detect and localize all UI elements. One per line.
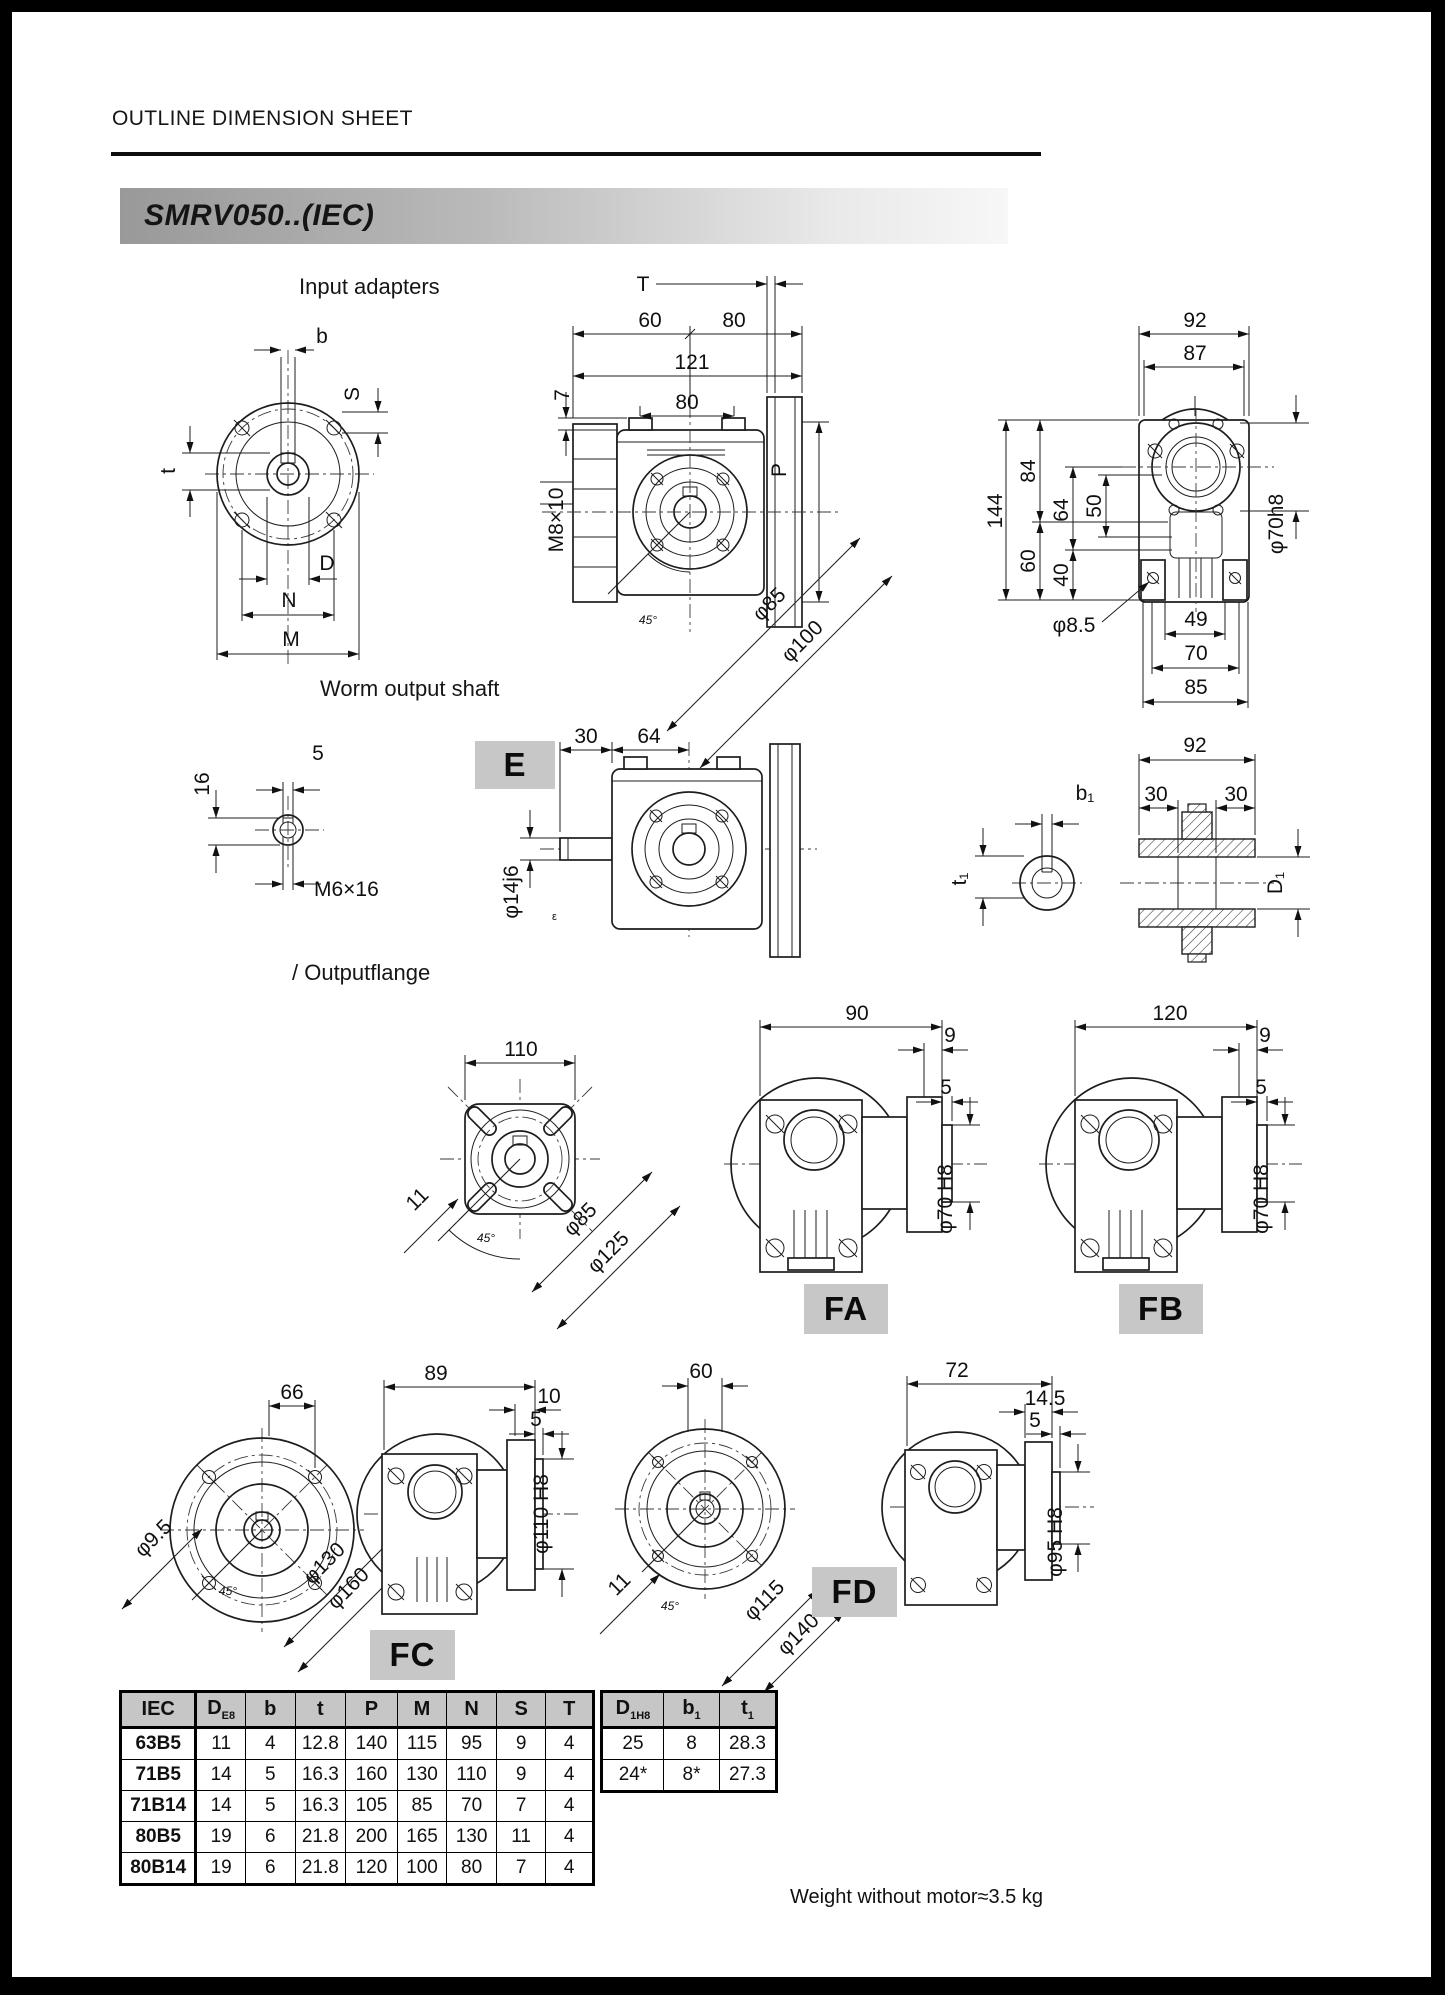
badge-e: E (475, 741, 555, 789)
cell: 4 (546, 1760, 594, 1791)
dim-phi70h8: φ70h8 (1265, 494, 1288, 554)
table-row: 71B14 14 5 16.3 105 85 70 7 4 (121, 1791, 594, 1822)
dim-70: 70 (1184, 642, 1207, 665)
col-header-t: t (295, 1692, 346, 1728)
dim-9fa: 9 (944, 1024, 956, 1047)
dim-66: 66 (280, 1381, 303, 1404)
dim-89: 89 (424, 1362, 447, 1385)
col-header-n: N (447, 1692, 497, 1728)
cell: 16.3 (295, 1760, 346, 1791)
dim-144: 144 (984, 493, 1007, 528)
cell: 140 (346, 1728, 398, 1760)
cell: 115 (397, 1728, 447, 1760)
col-header-m: M (397, 1692, 447, 1728)
output-flange-front-drawing: 110 11 45° φ85 φ125 (402, 1038, 680, 1329)
col-header-s: S (496, 1692, 546, 1728)
input-flange-front-drawing: b S t D N M (157, 325, 388, 667)
cell: 80B14 (121, 1853, 196, 1885)
cell: 25 (602, 1728, 664, 1760)
output-shaft-end-drawing: 5 16 M6×16 (191, 742, 379, 901)
cell: 71B5 (121, 1760, 196, 1791)
dim-11: 11 (402, 1184, 434, 1216)
dim-121: 121 (674, 351, 709, 374)
cell: 14 (196, 1791, 246, 1822)
dim-t1: t₁ (948, 873, 971, 886)
dim-60fd: 60 (689, 1360, 712, 1383)
dim-11fd: 11 (604, 1569, 636, 1601)
dim-s: S (341, 387, 364, 401)
flange-fa-drawing: 90 9 5 φ70 H8 (724, 1002, 987, 1272)
bushing-section-drawing: 92 30 30 D₁ (1120, 734, 1310, 962)
cell: 11 (196, 1728, 246, 1760)
table-header-row: D1H8 b1 t1 (602, 1692, 777, 1728)
dim-7: 7 (551, 389, 574, 401)
cell: 4 (546, 1791, 594, 1822)
badge-fc: FC (370, 1630, 455, 1680)
cell: 12.8 (295, 1728, 346, 1760)
cell: 8 (664, 1728, 720, 1760)
cell: 130 (447, 1822, 497, 1853)
cell: 130 (397, 1760, 447, 1791)
cell: 165 (397, 1822, 447, 1853)
dim-60r: 60 (1017, 549, 1040, 572)
dim-5fc: 5 (530, 1408, 542, 1431)
dim-45fc: 45° (219, 1584, 237, 1598)
dim-30a: 30 (1144, 783, 1167, 806)
col-header-iec: IEC (121, 1692, 196, 1728)
cell: 9 (496, 1728, 546, 1760)
cell: 80B5 (121, 1822, 196, 1853)
dim-b1: b₁ (1076, 782, 1095, 805)
dimension-sheet-page: OUTLINE DIMENSION SHEET SMRV050..(IEC) I… (0, 0, 1445, 1995)
table-header-row: IEC DE8 b t P M N S T (121, 1692, 594, 1728)
cell: 5 (245, 1760, 295, 1791)
dim-30b: 30 (1224, 783, 1247, 806)
cell: 100 (397, 1853, 447, 1885)
dim-d: D (319, 552, 334, 575)
dim-5fa: 5 (940, 1076, 952, 1099)
dim-85: 85 (1184, 676, 1207, 699)
table-row: 25 8 28.3 (602, 1728, 777, 1760)
dim-phi70fb: φ70 H8 (1250, 1164, 1273, 1234)
flange-fc-side-drawing: 89 10 5 φ110 H8 (357, 1362, 582, 1614)
cell: 70 (447, 1791, 497, 1822)
dim-84: 84 (1017, 459, 1040, 483)
cell: 28.3 (720, 1728, 777, 1760)
cell: 21.8 (295, 1822, 346, 1853)
dim-n: N (281, 589, 296, 612)
dim-5shaft: 5 (312, 742, 324, 765)
dim-10: 10 (537, 1385, 560, 1408)
cell: 5 (245, 1791, 295, 1822)
dim-5fb: 5 (1255, 1076, 1267, 1099)
cell: 6 (245, 1853, 295, 1885)
cell: 4 (546, 1853, 594, 1885)
dim-49: 49 (1184, 608, 1207, 631)
cell: 85 (397, 1791, 447, 1822)
dim-120: 120 (1152, 1002, 1187, 1025)
table-row: 71B5 14 5 16.3 160 130 110 9 4 (121, 1760, 594, 1791)
dim-phi8-5: φ8.5 (1053, 614, 1096, 637)
dim-phi14j6: φ14j6 (500, 865, 523, 918)
col-header-b1: b1 (664, 1692, 720, 1728)
cell: 7 (496, 1791, 546, 1822)
dim-30e: 30 (574, 725, 597, 748)
dim-T: T (637, 273, 650, 296)
dim-b: b (316, 325, 328, 348)
dim-t: t (157, 468, 180, 474)
cell: 19 (196, 1822, 246, 1853)
dim-110: 110 (504, 1038, 537, 1061)
col-header-p: P (346, 1692, 398, 1728)
flange-fd-side-drawing: 72 14.5 5 φ95 H8 (882, 1359, 1094, 1605)
dim-60: 60 (638, 309, 661, 332)
surface-mark: ε (552, 911, 557, 923)
cell: 200 (346, 1822, 398, 1853)
cell: 120 (346, 1853, 398, 1885)
dim-9fb: 9 (1259, 1024, 1271, 1047)
dim-phi70fa: φ70 H8 (934, 1164, 957, 1234)
dim-92b: 92 (1183, 734, 1206, 757)
cell: 4 (546, 1728, 594, 1760)
cell: 9 (496, 1760, 546, 1791)
table-row: 63B5 11 4 12.8 140 115 95 9 4 (121, 1728, 594, 1760)
dim-45fd: 45° (661, 1599, 679, 1613)
table-row: 80B5 19 6 21.8 200 165 130 11 4 (121, 1822, 594, 1853)
col-header-d1: D1H8 (602, 1692, 664, 1728)
flange-fc-front-drawing: 66 φ9.5 45° φ130 φ160 (122, 1381, 410, 1672)
dim-64r: 64 (1050, 498, 1073, 522)
input-adapter-rear-drawing: 92 87 144 84 60 64 40 50 (984, 309, 1309, 708)
cell: 105 (346, 1791, 398, 1822)
cell: 7 (496, 1853, 546, 1885)
cell: 4 (245, 1728, 295, 1760)
dim-m6x16: M6×16 (314, 878, 379, 901)
cell: 6 (245, 1822, 295, 1853)
dim-72: 72 (945, 1359, 968, 1382)
dim-80a: 80 (722, 309, 745, 332)
col-header-d: DE8 (196, 1692, 246, 1728)
cell: 21.8 (295, 1853, 346, 1885)
cell: 24* (602, 1760, 664, 1792)
badge-fa: FA (804, 1284, 888, 1334)
dim-phi125: φ125 (583, 1227, 634, 1278)
flange-fb-drawing: 120 9 5 φ70 H8 (1039, 1002, 1302, 1272)
dim-90: 90 (845, 1002, 868, 1025)
dim-64e: 64 (637, 725, 661, 748)
dim-45deg: 45° (639, 613, 657, 627)
cell: 16.3 (295, 1791, 346, 1822)
dim-P: P (768, 463, 791, 477)
col-header-b: b (245, 1692, 295, 1728)
cell: 80 (447, 1853, 497, 1885)
cell: 8* (664, 1760, 720, 1792)
table-row: 80B14 19 6 21.8 120 100 80 7 4 (121, 1853, 594, 1885)
dim-16: 16 (191, 772, 214, 795)
iec-dimension-table: IEC DE8 b t P M N S T 63B5 11 4 12.8 140… (119, 1690, 595, 1886)
cell: 19 (196, 1853, 246, 1885)
cell: 160 (346, 1760, 398, 1791)
dim-phi110: φ110 H8 (530, 1474, 553, 1554)
cell: 95 (447, 1728, 497, 1760)
badge-fb: FB (1119, 1284, 1203, 1334)
cell: 4 (546, 1822, 594, 1853)
dim-m8x10: M8×10 (545, 488, 568, 553)
table-row: 24* 8* 27.3 (602, 1760, 777, 1792)
dim-40: 40 (1050, 563, 1073, 586)
cell: 27.3 (720, 1760, 777, 1792)
dim-5fd: 5 (1029, 1409, 1041, 1432)
weight-note: Weight without motor≈3.5 kg (790, 1886, 1043, 1909)
bushing-dimension-table: D1H8 b1 t1 25 8 28.3 24* 8* 27.3 (600, 1690, 778, 1793)
dim-80b: 80 (675, 391, 698, 414)
badge-fd: FD (812, 1567, 897, 1617)
dim-92: 92 (1183, 309, 1206, 332)
cell: 71B14 (121, 1791, 196, 1822)
cell: 14 (196, 1760, 246, 1791)
cell: 110 (447, 1760, 497, 1791)
dim-87: 87 (1183, 342, 1206, 365)
input-adapter-side-drawing: 60 80 121 80 T P 7 (540, 273, 892, 768)
flange-fd-front-drawing: 60 11 45° φ115 φ140 (600, 1360, 844, 1692)
bushing-front-drawing: b₁ t₁ (948, 782, 1094, 926)
dim-phi115: φ115 (740, 1576, 790, 1626)
dim-D1: D₁ (1264, 872, 1287, 894)
dim-phi95: φ95 H8 (1044, 1507, 1067, 1577)
dim-m: M (282, 628, 300, 651)
dim-45of: 45° (477, 1231, 495, 1245)
col-header-t1: t1 (720, 1692, 777, 1728)
cell: 11 (496, 1822, 546, 1853)
col-header-t2: T (546, 1692, 594, 1728)
cell: 63B5 (121, 1728, 196, 1760)
dim-14-5: 14.5 (1025, 1387, 1066, 1410)
dim-50: 50 (1083, 494, 1106, 517)
